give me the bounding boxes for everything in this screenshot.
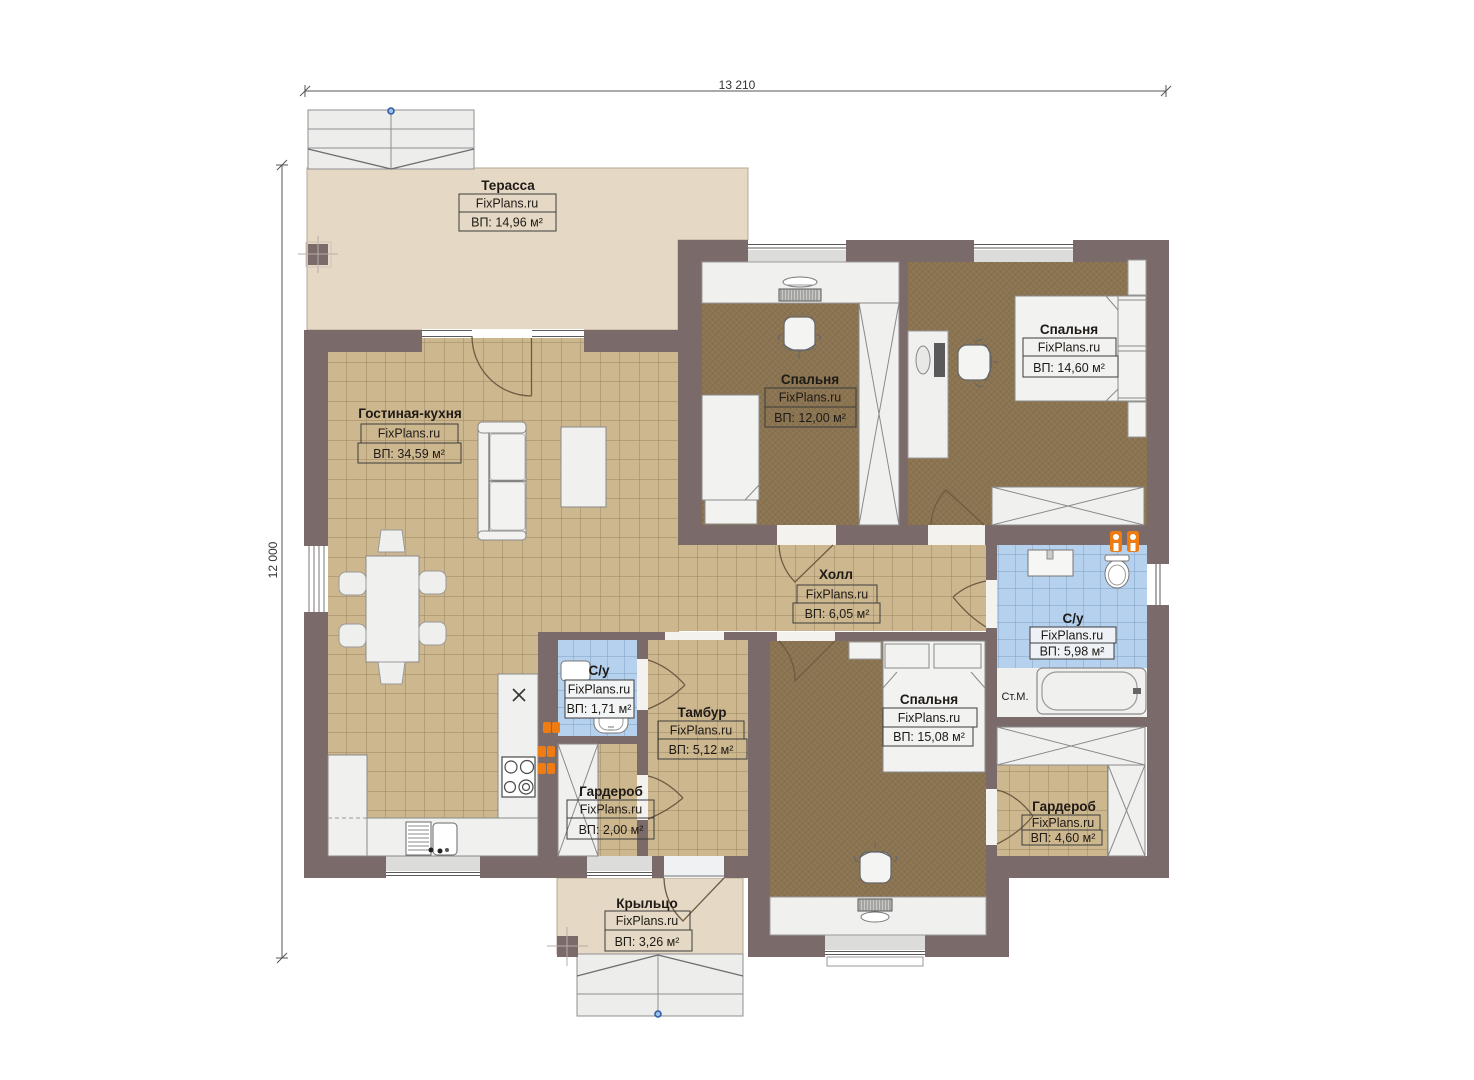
svg-text:FixPlans.ru: FixPlans.ru	[1038, 341, 1101, 355]
svg-text:FixPlans.ru: FixPlans.ru	[568, 683, 631, 697]
svg-text:ВП: 5,12 м²: ВП: 5,12 м²	[669, 743, 734, 757]
svg-text:ВП: 1,71 м²: ВП: 1,71 м²	[567, 702, 632, 716]
svg-text:ВП: 2,00 м²: ВП: 2,00 м²	[579, 823, 644, 837]
svg-text:FixPlans.ru: FixPlans.ru	[670, 724, 733, 738]
svg-text:FixPlans.ru: FixPlans.ru	[476, 197, 539, 211]
svg-text:Холл: Холл	[819, 567, 853, 582]
svg-text:ВП: 14,60 м²: ВП: 14,60 м²	[1033, 361, 1105, 375]
svg-text:ВП: 12,00 м²: ВП: 12,00 м²	[774, 411, 846, 425]
svg-text:13 210: 13 210	[719, 78, 756, 92]
svg-text:FixPlans.ru: FixPlans.ru	[806, 588, 869, 602]
svg-text:ВП: 14,96 м²: ВП: 14,96 м²	[471, 216, 543, 230]
svg-text:ВП: 15,08 м²: ВП: 15,08 м²	[893, 730, 965, 744]
svg-text:ВП: 34,59 м²: ВП: 34,59 м²	[373, 447, 445, 461]
svg-text:Гардероб: Гардероб	[579, 784, 643, 799]
svg-text:FixPlans.ru: FixPlans.ru	[1041, 629, 1104, 643]
svg-text:FixPlans.ru: FixPlans.ru	[616, 914, 679, 928]
svg-text:ВП: 6,05 м²: ВП: 6,05 м²	[805, 607, 870, 621]
svg-text:Терасса: Терасса	[481, 178, 535, 193]
svg-text:Гостиная-кухня: Гостиная-кухня	[358, 406, 461, 421]
svg-text:FixPlans.ru: FixPlans.ru	[779, 391, 842, 405]
svg-text:Гардероб: Гардероб	[1032, 799, 1096, 814]
svg-text:ВП: 5,98 м²: ВП: 5,98 м²	[1040, 645, 1105, 659]
svg-text:Тамбур: Тамбур	[678, 705, 727, 720]
svg-text:ВП: 4,60 м²: ВП: 4,60 м²	[1031, 831, 1096, 845]
svg-text:FixPlans.ru: FixPlans.ru	[378, 427, 441, 441]
svg-text:С/у: С/у	[588, 663, 610, 678]
svg-text:Спальня: Спальня	[781, 372, 839, 387]
svg-text:ВП: 3,26 м²: ВП: 3,26 м²	[615, 935, 680, 949]
svg-text:FixPlans.ru: FixPlans.ru	[898, 711, 961, 725]
svg-text:FixPlans.ru: FixPlans.ru	[580, 803, 643, 817]
svg-text:Ст.М.: Ст.М.	[1001, 691, 1028, 703]
svg-text:Крыльцо: Крыльцо	[616, 896, 677, 911]
svg-text:12 000: 12 000	[266, 541, 280, 578]
svg-text:Спальня: Спальня	[900, 692, 958, 707]
svg-text:FixPlans.ru: FixPlans.ru	[1032, 816, 1095, 830]
svg-text:Спальня: Спальня	[1040, 322, 1098, 337]
svg-text:С/у: С/у	[1062, 611, 1084, 626]
